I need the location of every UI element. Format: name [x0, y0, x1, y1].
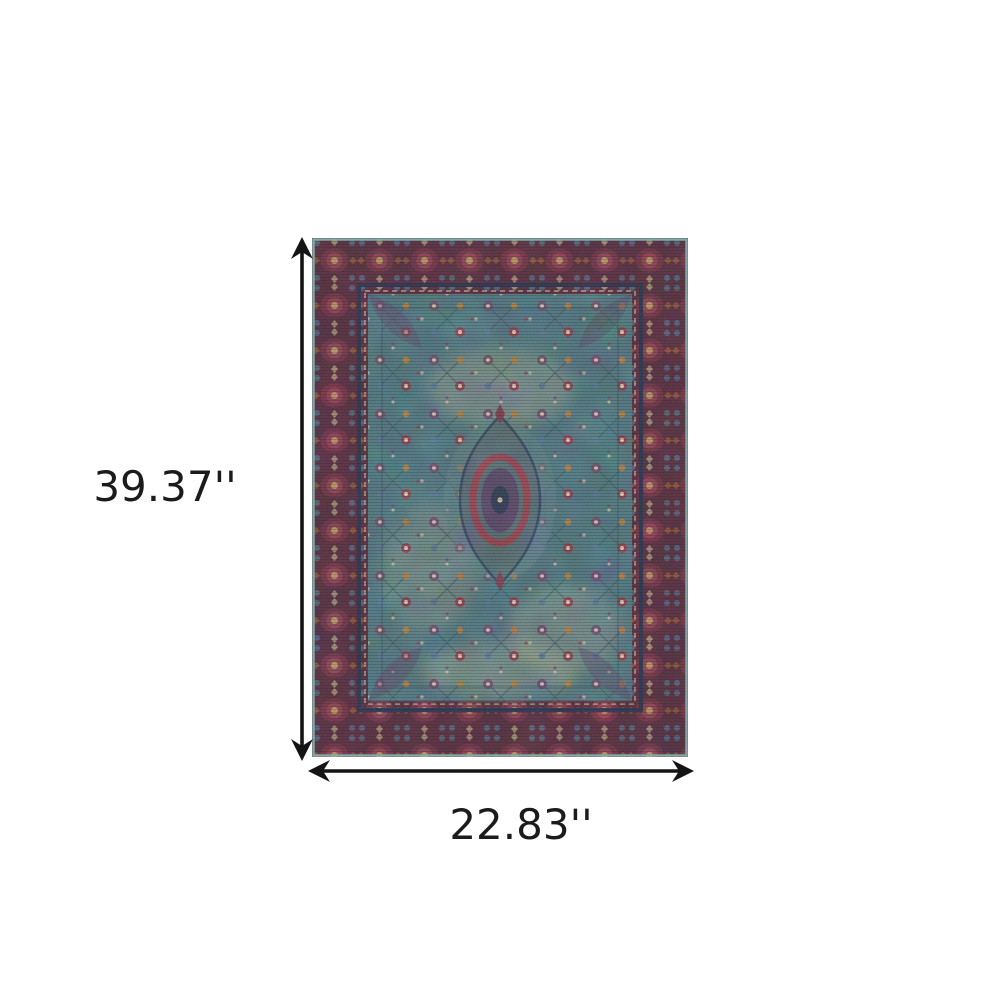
height-dimension-arrow	[291, 237, 313, 761]
product-dimension-figure: 39.37'' 22.83''	[0, 0, 1000, 1000]
rug-illustration	[312, 238, 688, 757]
height-dimension-label: 39.37''	[58, 462, 272, 511]
rug-image	[312, 238, 688, 757]
width-dimension-label: 22.83''	[414, 800, 628, 849]
width-dimension-arrow	[308, 760, 694, 782]
